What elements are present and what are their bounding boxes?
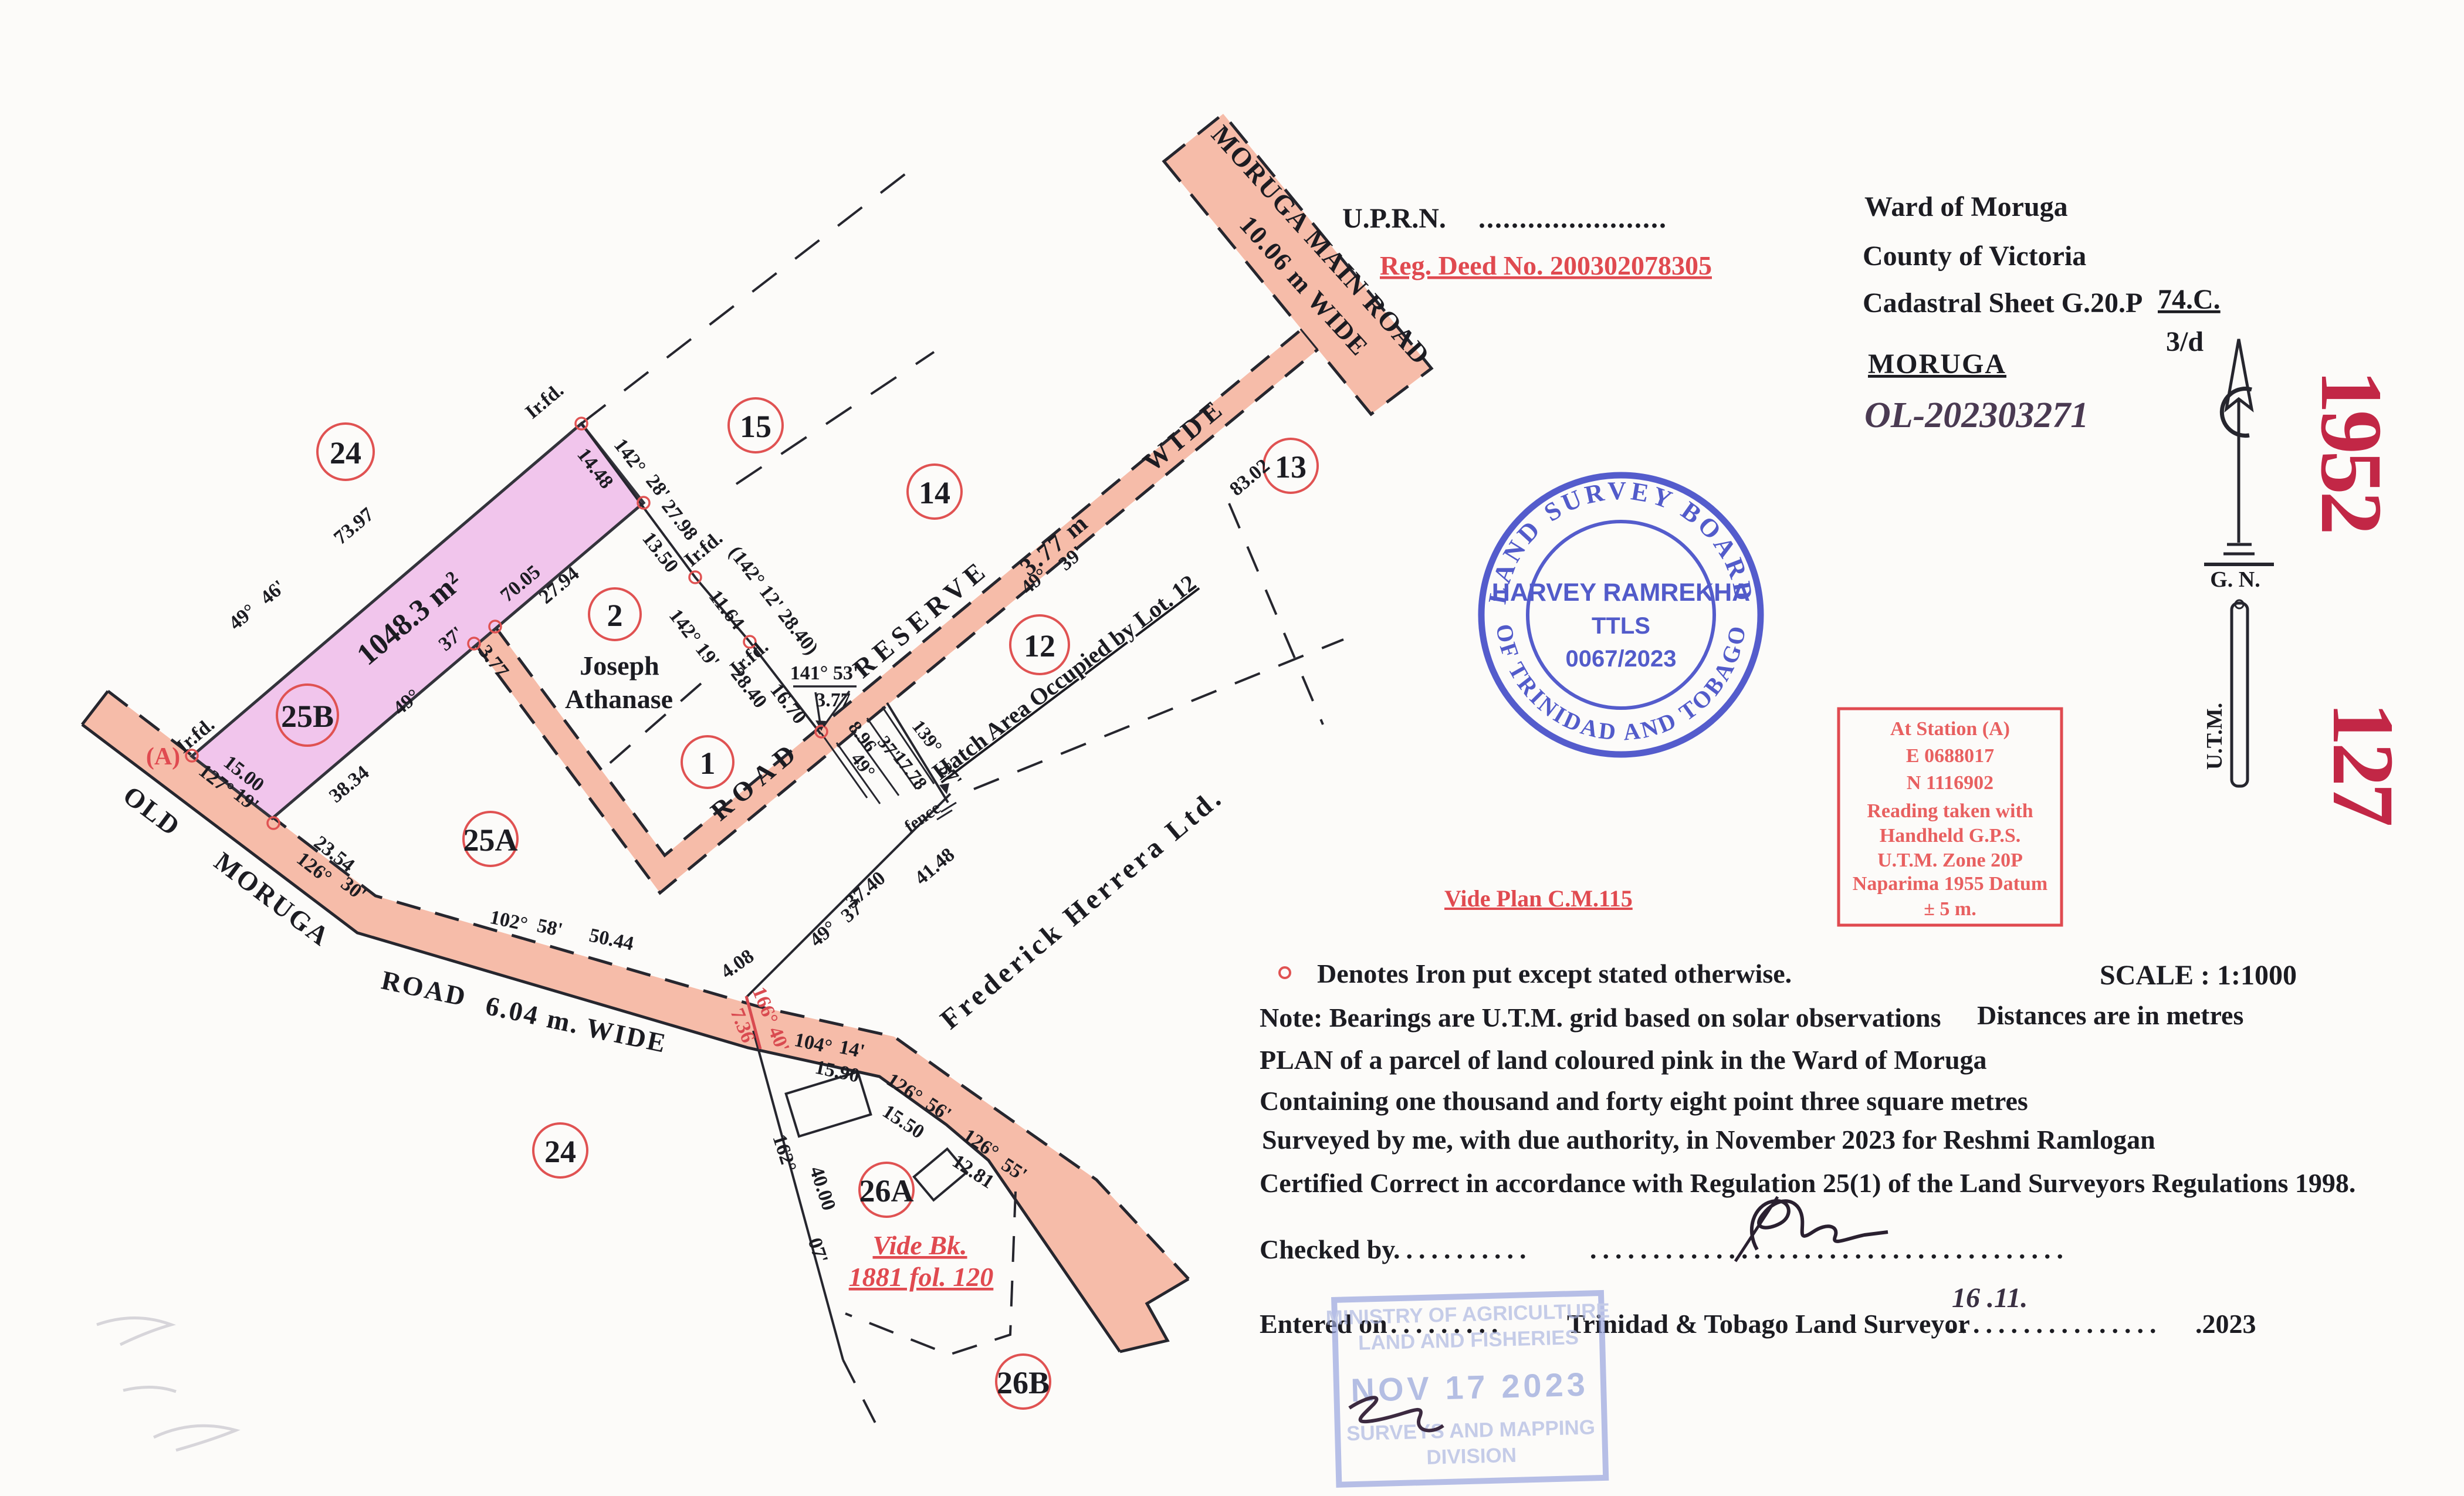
svg-text:1952: 1952 <box>2303 370 2400 532</box>
svg-text:G. N.: G. N. <box>2210 567 2260 592</box>
svg-text:E 0688017: E 0688017 <box>1906 745 1994 767</box>
svg-text:Containing one thousand and fo: Containing one thousand and forty eight … <box>1260 1086 2028 1116</box>
svg-text:24: 24 <box>544 1134 576 1169</box>
svg-text:U.T.M. Zone 20P: U.T.M. Zone 20P <box>1877 849 2023 871</box>
svg-text:1881 fol. 120: 1881 fol. 120 <box>849 1262 994 1292</box>
svg-text:14: 14 <box>919 475 950 510</box>
svg-text:Vide Bk.: Vide Bk. <box>872 1230 967 1260</box>
svg-text:3/d: 3/d <box>2166 326 2204 357</box>
svg-text:..............................: ...................................... <box>1590 1234 2069 1264</box>
svg-text:NOV 17 2023: NOV 17 2023 <box>1351 1366 1589 1409</box>
svg-text:Vide Plan C.M.115: Vide Plan C.M.115 <box>1444 885 1633 912</box>
svg-text:25A: 25A <box>463 823 518 858</box>
svg-text:HARVEY RAMREKHA: HARVEY RAMREKHA <box>1492 578 1750 607</box>
svg-text:Cadastral Sheet G.20.P: Cadastral Sheet G.20.P <box>1863 287 2143 319</box>
svg-text:Note: Bearings are U.T.M. grid: Note: Bearings are U.T.M. grid based on … <box>1260 1003 1941 1033</box>
svg-text:Surveyed by me, with due autho: Surveyed by me, with due authority, in N… <box>1262 1125 2155 1155</box>
svg-text:26A: 26A <box>859 1173 914 1209</box>
svg-text:127: 127 <box>2314 702 2412 825</box>
svg-text:(A): (A) <box>146 743 180 770</box>
svg-text:Athanase: Athanase <box>565 684 673 714</box>
svg-text:...........: ........... <box>1393 1234 1532 1264</box>
svg-text:OL-202303271: OL-202303271 <box>1864 395 2089 435</box>
svg-text:.......................: ....................... <box>1478 203 1667 234</box>
svg-text:Distances are in metres: Distances are in metres <box>1977 1000 2243 1030</box>
svg-text:Reg. Deed No. 200302078305: Reg. Deed No. 200302078305 <box>1380 251 1712 280</box>
svg-text:Naparima 1955 Datum: Naparima 1955 Datum <box>1853 873 2047 895</box>
svg-text:Handheld G.P.S.: Handheld G.P.S. <box>1880 825 2021 847</box>
svg-text:3.77: 3.77 <box>815 689 851 711</box>
svg-text:0067/2023: 0067/2023 <box>1565 646 1676 672</box>
svg-text:12: 12 <box>1024 628 1055 664</box>
svg-text:16 .11.: 16 .11. <box>1952 1282 2028 1314</box>
svg-text:Joseph: Joseph <box>580 651 659 681</box>
svg-text:± 5 m.: ± 5 m. <box>1924 898 1976 920</box>
svg-text:DIVISION: DIVISION <box>1426 1444 1517 1469</box>
svg-text:25B: 25B <box>281 699 334 734</box>
svg-text:Trinidad & Tobago Land Survey: Trinidad & Tobago Land Surveyor <box>1567 1309 1970 1339</box>
svg-text:Reading taken with: Reading taken with <box>1867 800 2033 822</box>
svg-text:Denotes Iron put except stated: Denotes Iron put except stated otherwise… <box>1317 959 1792 989</box>
svg-text:1: 1 <box>700 746 716 781</box>
svg-text:Certified Correct in accordanc: Certified Correct in accordance with Reg… <box>1260 1168 2355 1198</box>
svg-text:N 1116902: N 1116902 <box>1907 772 1993 794</box>
svg-text:141° 53': 141° 53' <box>790 662 859 684</box>
svg-text:2: 2 <box>607 598 623 633</box>
svg-text:15: 15 <box>740 409 771 444</box>
svg-text:At Station (A): At Station (A) <box>1890 718 2010 740</box>
svg-text:MORUGA: MORUGA <box>1868 348 2006 380</box>
svg-text:County of Victoria: County of Victoria <box>1863 241 2086 272</box>
svg-text:U.T.M.: U.T.M. <box>2202 703 2227 770</box>
svg-text:Ward of Moruga: Ward of Moruga <box>1864 191 2068 222</box>
svg-text:13: 13 <box>1275 449 1307 485</box>
svg-text:74.C.: 74.C. <box>2158 284 2221 315</box>
svg-text:.2023: .2023 <box>2195 1309 2256 1339</box>
svg-text:24: 24 <box>330 435 361 471</box>
svg-text:TTLS: TTLS <box>1592 613 1650 639</box>
svg-text:Checked by: Checked by <box>1260 1234 1395 1264</box>
svg-text:PLAN of a parcel of land colou: PLAN of a parcel of land coloured pink i… <box>1260 1045 1987 1075</box>
svg-text:SCALE : 1:1000: SCALE : 1:1000 <box>2100 960 2297 991</box>
svg-text:U.P.R.N.: U.P.R.N. <box>1342 203 1446 234</box>
svg-text:26B: 26B <box>997 1365 1050 1400</box>
